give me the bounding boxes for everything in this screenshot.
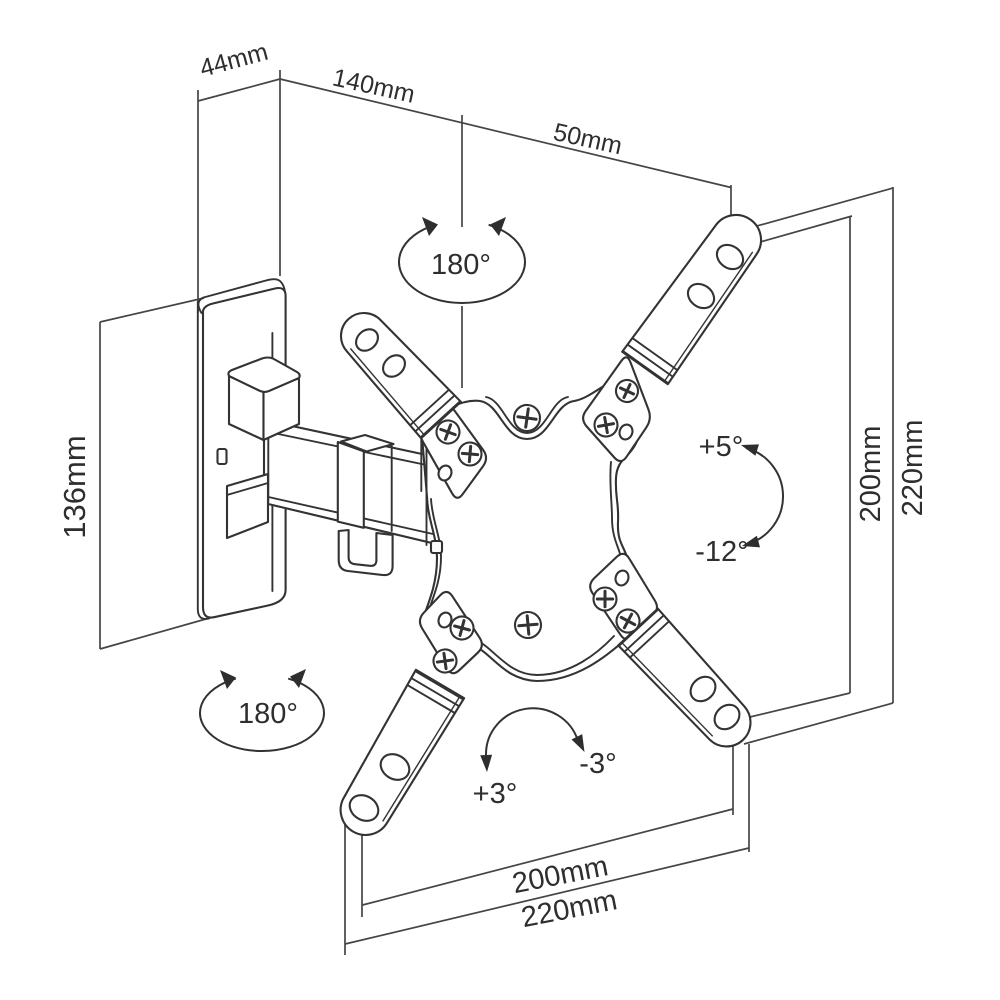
svg-text:200mm: 200mm <box>855 426 887 523</box>
svg-text:-12°: -12° <box>695 536 749 568</box>
svg-text:50mm: 50mm <box>551 118 625 160</box>
svg-text:220mm: 220mm <box>897 420 929 517</box>
svg-text:180°: 180° <box>238 698 298 730</box>
svg-text:136mm: 136mm <box>57 435 92 538</box>
svg-text:+3°: +3° <box>473 778 518 810</box>
svg-text:44mm: 44mm <box>197 38 271 83</box>
svg-text:180°: 180° <box>431 249 491 281</box>
svg-text:-3°: -3° <box>579 748 616 780</box>
svg-text:+5°: +5° <box>699 431 744 463</box>
